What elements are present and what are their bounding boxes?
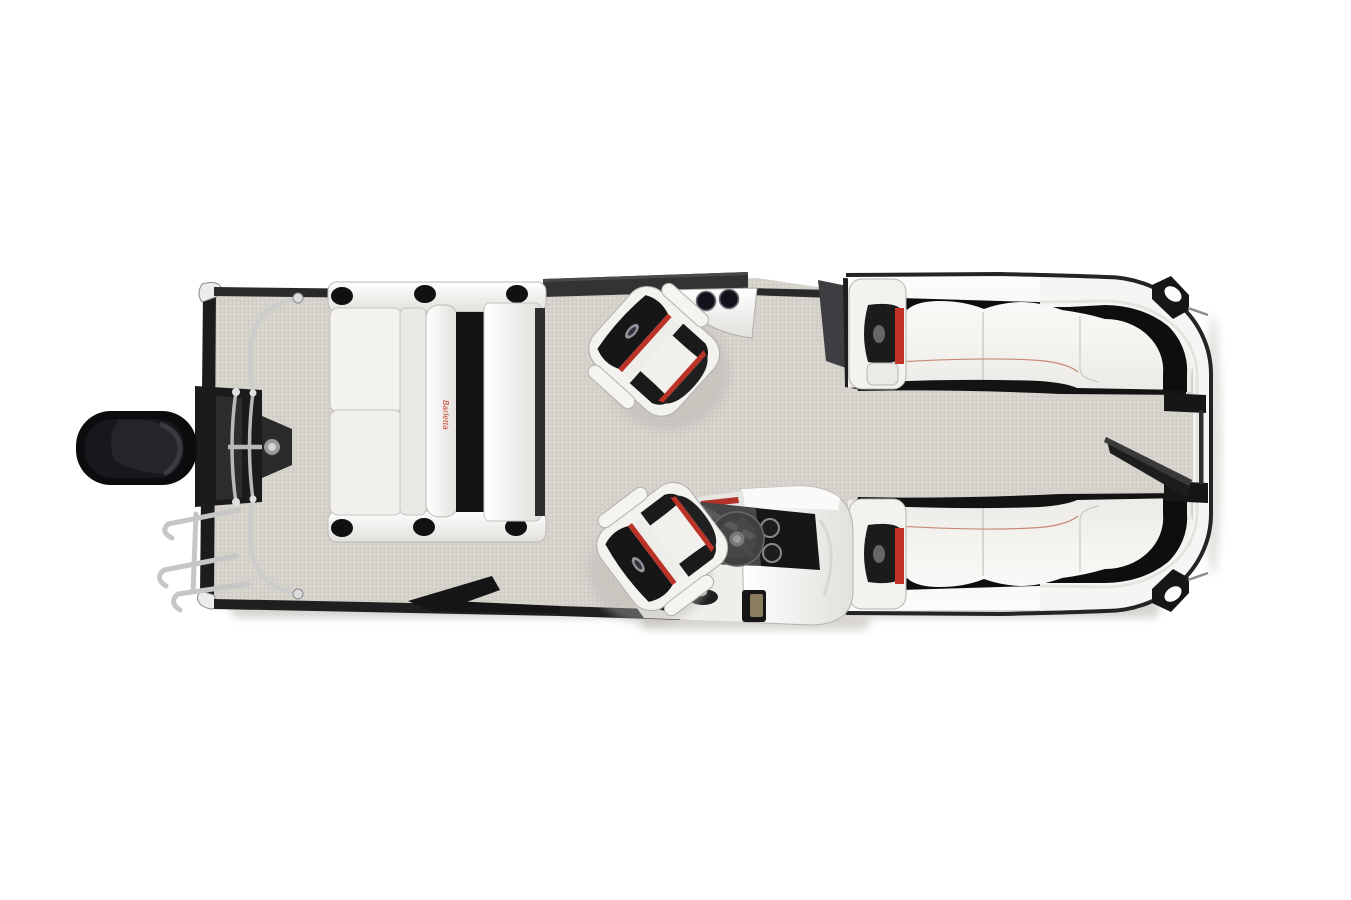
svg-text:Barletta: Barletta [441, 400, 450, 430]
